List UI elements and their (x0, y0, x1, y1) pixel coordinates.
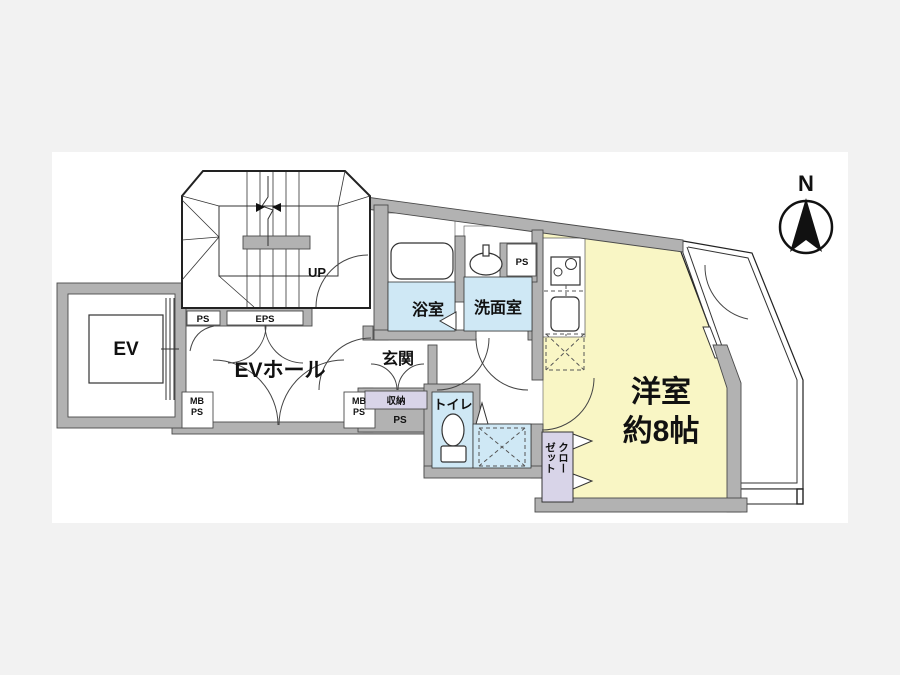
eps-label: EPS (255, 314, 274, 325)
toilet-label: トイレ (433, 397, 472, 412)
closet-label-column-right: クロー (557, 442, 569, 474)
mb-right-line1: MB (352, 396, 366, 406)
storage-label: 収納 (386, 395, 405, 407)
wall-bath-wash-divider (455, 236, 465, 302)
washroom-label: 洗面室 (474, 298, 522, 317)
wall-bath-bottom (374, 330, 476, 340)
mb-left-line1: MB (190, 396, 204, 406)
compass-north-label: N (798, 171, 814, 196)
mb-right-line2: PS (353, 407, 365, 417)
main-room-label: 洋室 (631, 375, 691, 409)
main-room-size-label: 約8帖 (623, 415, 700, 448)
entrance-label: 玄関 (382, 349, 414, 368)
ps-stairwell-label: PS (197, 314, 210, 325)
stair-landing-wall (243, 236, 310, 249)
elevator-label: EV (113, 339, 139, 360)
toilet-bowl (442, 414, 464, 446)
floorplan-page: N 洋室 約8帖 EVホール EV 浴室 洗面室 玄関 トイレ UP PS EP… (0, 0, 900, 675)
toilet-tank (441, 446, 466, 462)
ev-hall-label: EVホール (234, 359, 325, 382)
bathtub (391, 243, 453, 279)
mb-left-line2: PS (191, 407, 203, 417)
bathroom-label: 浴室 (412, 300, 444, 319)
wall-bath-left (374, 205, 388, 340)
kitchen-sink (551, 297, 579, 331)
washbasin-faucet (483, 245, 489, 256)
ps-under-storage-label: PS (393, 415, 407, 426)
stairwell (182, 171, 370, 308)
balcony-corner-post (797, 489, 803, 504)
stairs-up-label: UP (308, 265, 326, 280)
floorplan-svg: N 洋室 約8帖 EVホール EV 浴室 洗面室 玄関 トイレ UP PS EP… (0, 0, 900, 675)
wall-entrance-right (428, 345, 437, 390)
ps-washroom-label: PS (516, 257, 529, 268)
closet-label-column-left: ゼット (544, 441, 556, 473)
